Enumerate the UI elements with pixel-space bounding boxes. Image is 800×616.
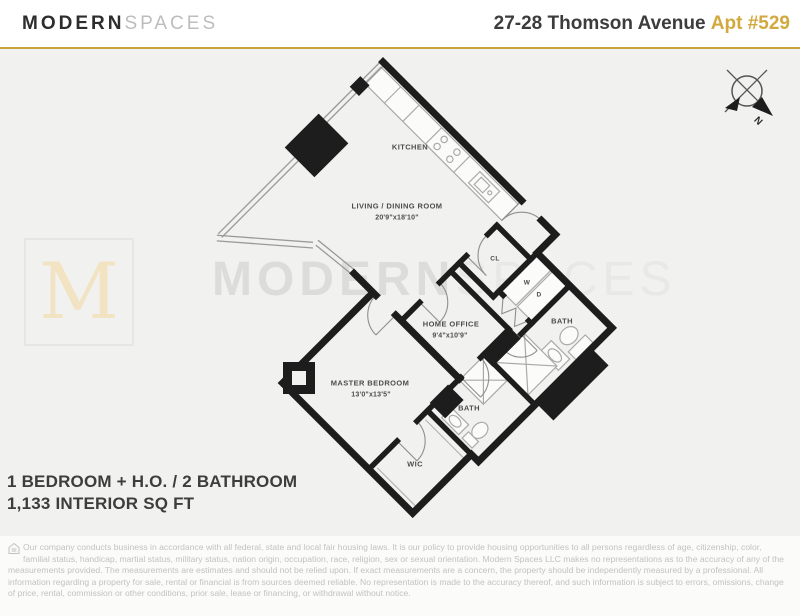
walls [172,62,630,520]
room-dims-living-dining: 20'9"x18'10" [375,215,419,222]
listing-summary: 1 BEDROOM + H.O. / 2 BATHROOM 1,133 INTE… [7,471,297,515]
room-label-washer: W [524,280,531,287]
equal-housing-icon [8,543,20,554]
room-label-living-dining: LIVING / DINING ROOM [352,202,443,211]
summary-sqft: 1,133 INTERIOR SQ FT [7,493,297,515]
compass-north-icon: N [725,70,773,128]
floor-plan-drawing: N [0,0,800,616]
disclaimer: Our company conducts business in accorda… [8,542,790,600]
room-label-home-office: HOME OFFICE [423,320,479,329]
room-dims-home-office: 9'4"x10'9" [432,333,467,340]
room-label-bath-1: BATH [551,317,573,326]
footer: Our company conducts business in accorda… [0,536,800,616]
corner-column [283,362,315,394]
floor-plan-page: MODERNSPACES 27-28 Thomson Avenue Apt #5… [0,0,800,616]
room-label-kitchen: KITCHEN [392,143,428,152]
room-label-closet: CL [490,256,499,263]
room-label-wic: WIC [407,460,423,469]
plan-area: M MODERNSPACES N [0,49,800,536]
room-label-bath-2: BATH [458,404,480,413]
disclaimer-text: Our company conducts business in accorda… [8,542,784,598]
room-label-master-bedroom: MASTER BEDROOM [331,379,410,388]
kitchen-fixtures [365,67,518,220]
compass-north-label: N [751,115,764,128]
washer-dryer-fixtures [502,256,567,321]
room-label-dryer: D [536,292,541,299]
summary-layout: 1 BEDROOM + H.O. / 2 BATHROOM [7,471,297,493]
room-dims-master-bedroom: 13'0"x13'5" [351,392,390,399]
